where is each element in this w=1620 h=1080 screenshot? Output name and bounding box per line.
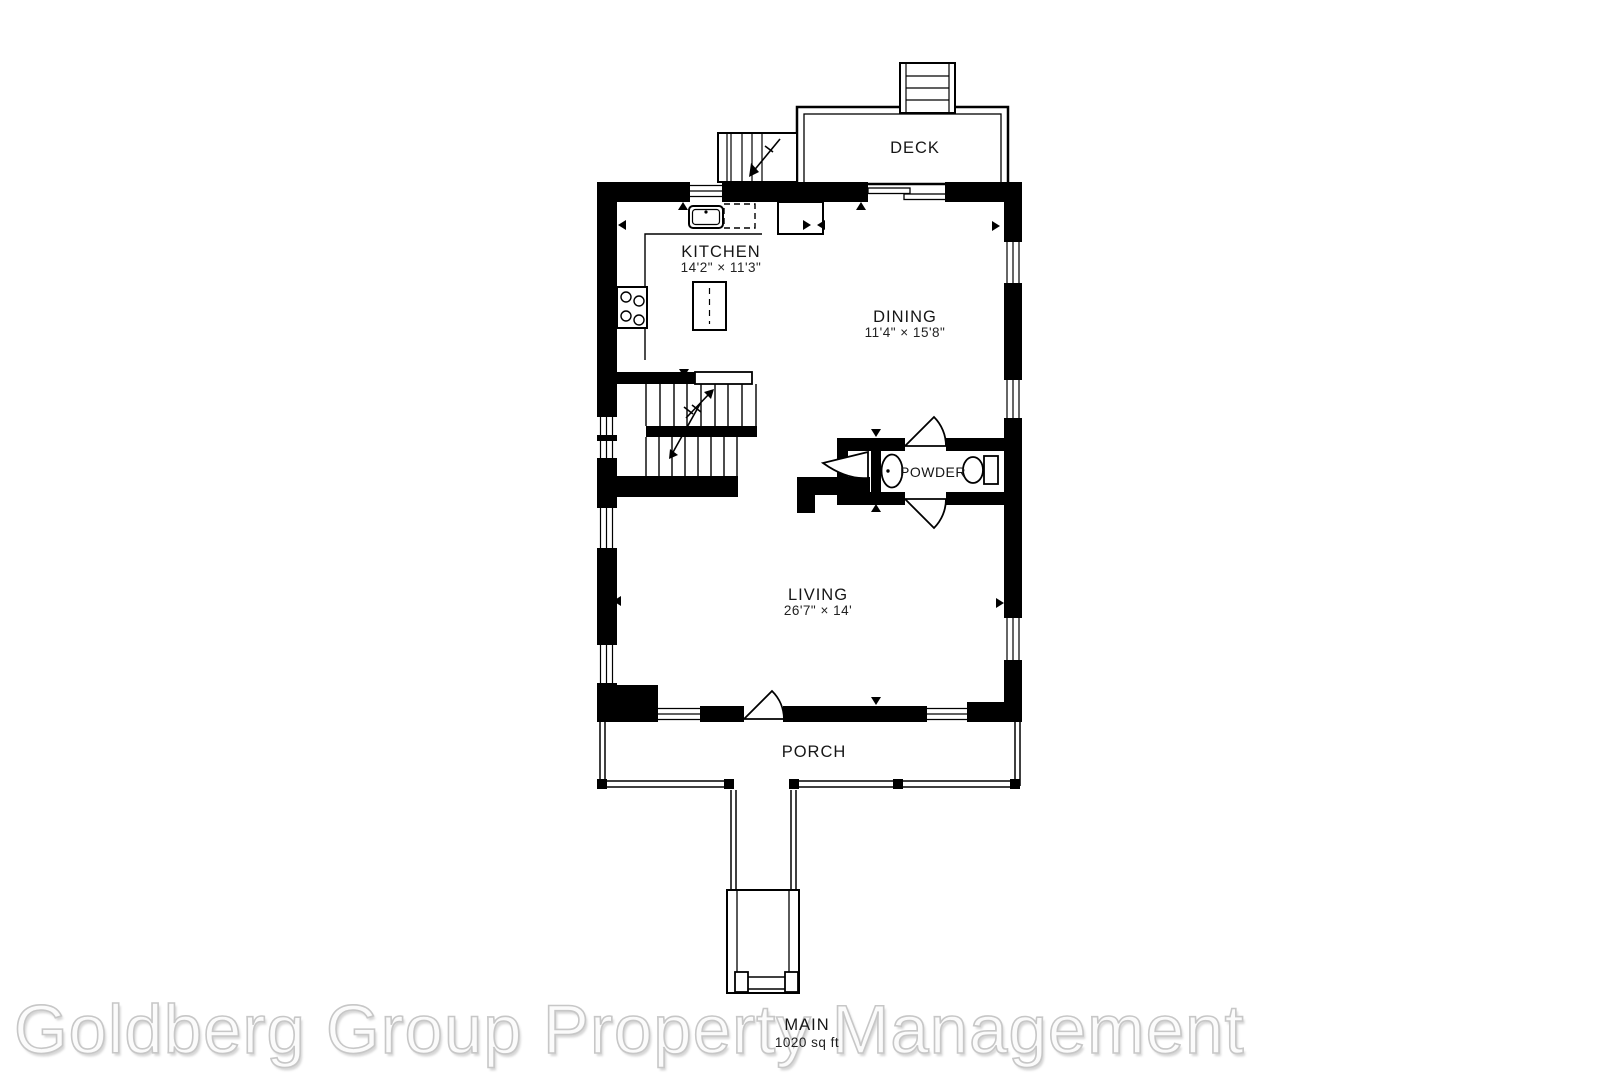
interior-stairs — [646, 372, 756, 476]
room-label-dining: DINING — [873, 308, 937, 326]
deck-stairs — [900, 63, 955, 113]
front-steps — [727, 790, 799, 993]
sliding-door — [868, 188, 946, 200]
room-label-deck: DECK — [890, 139, 940, 157]
room-dims-kitchen: 14'2" × 11'3" — [681, 260, 762, 275]
walls — [597, 182, 1022, 722]
level-label: MAIN — [784, 1016, 829, 1034]
room-label-kitchen: KITCHEN — [681, 243, 760, 261]
front-door — [744, 691, 784, 719]
room-label-powder: POWDER — [900, 464, 966, 480]
powder-door-upper — [905, 417, 946, 446]
floor-plan: DECK KITCHEN 14'2" × 11'3" DINING 11'4" … — [0, 0, 1620, 1080]
windows — [601, 186, 1020, 720]
powder-door-lower — [905, 499, 946, 528]
room-dims-dining: 11'4" × 15'8" — [865, 325, 946, 340]
exterior-stairs — [718, 133, 797, 182]
room-dims-living: 26'7" × 14' — [784, 603, 852, 618]
toilet — [963, 456, 998, 484]
refrigerator — [778, 202, 823, 234]
stove — [617, 287, 647, 328]
room-label-porch: PORCH — [782, 743, 847, 761]
kitchen-fixtures — [617, 202, 823, 360]
room-label-living: LIVING — [788, 586, 848, 604]
kitchen-island — [693, 282, 726, 330]
kitchen-sink — [689, 206, 723, 228]
floorplan-page: Goldberg Group Property Management — [0, 0, 1620, 1080]
level-area-label: 1020 sq ft — [775, 1035, 839, 1050]
stairs-up-arrow — [684, 389, 714, 418]
dishwasher — [724, 204, 755, 228]
